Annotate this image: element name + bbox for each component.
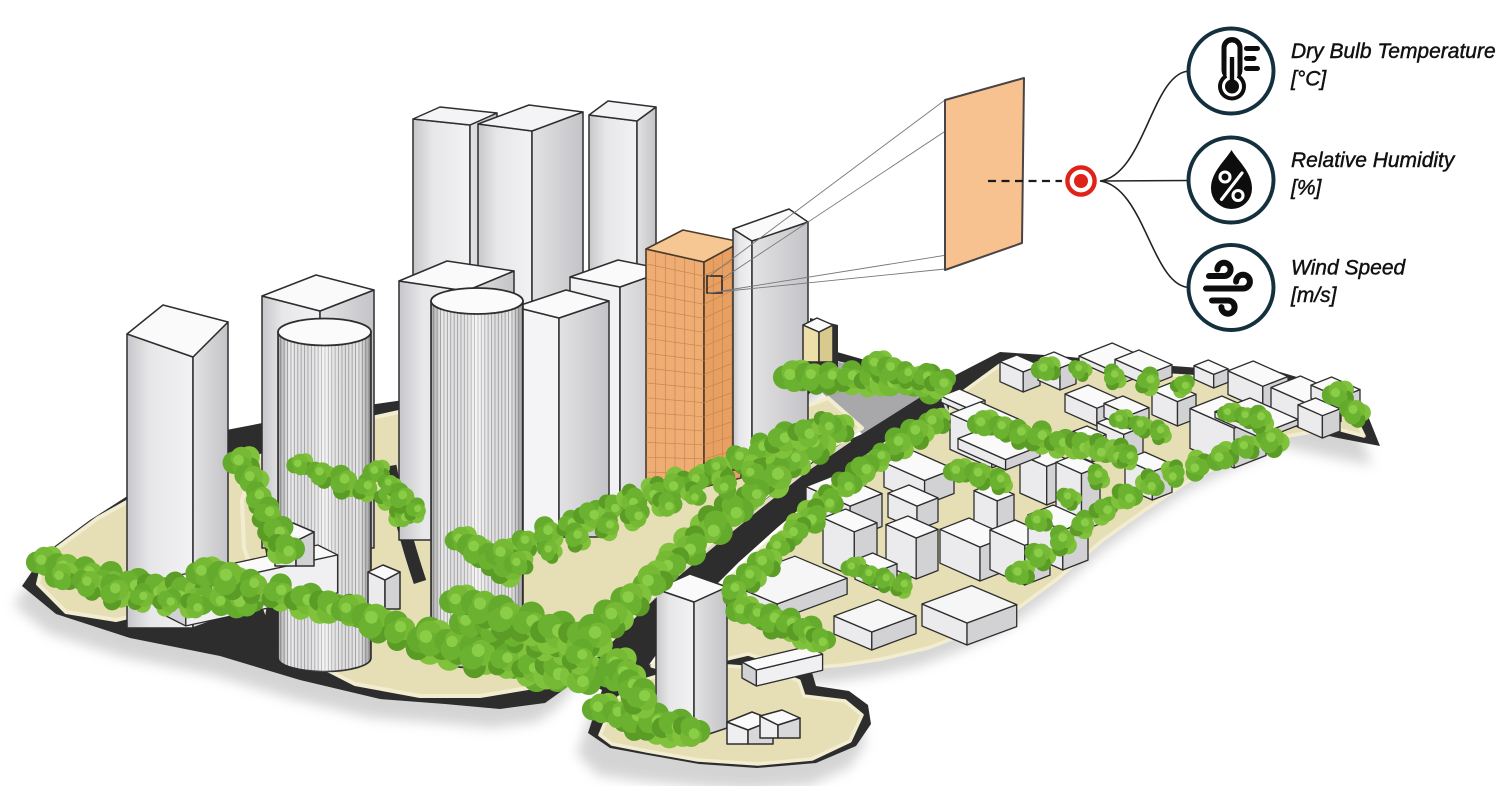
svg-text:[%]: [%] <box>1290 177 1323 200</box>
svg-text:Dry Bulb Temperature: Dry Bulb Temperature <box>1291 40 1496 63</box>
svg-text:Wind Speed: Wind Speed <box>1291 257 1407 280</box>
svg-text:[m/s]: [m/s] <box>1290 284 1338 307</box>
svg-text:Relative Humidity: Relative Humidity <box>1291 149 1456 172</box>
svg-text:[°C]: [°C] <box>1290 68 1327 91</box>
